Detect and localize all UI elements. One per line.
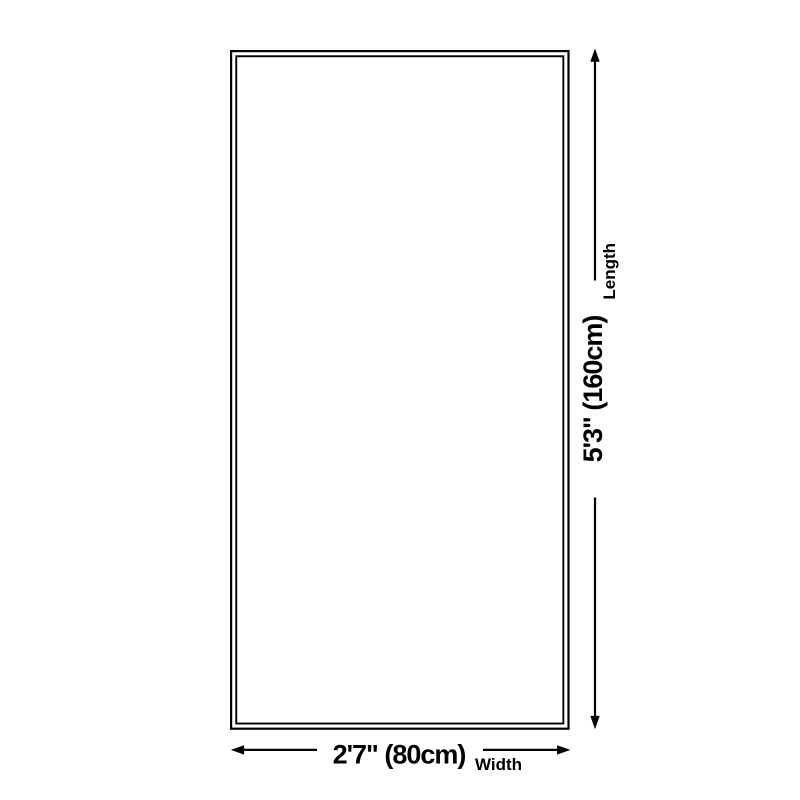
svg-text:5'3" (160cm): 5'3" (160cm) (578, 316, 608, 463)
svg-text:Width: Width (475, 755, 522, 774)
svg-text:2'7" (80cm): 2'7" (80cm) (333, 740, 466, 770)
svg-text:Length: Length (600, 243, 619, 300)
